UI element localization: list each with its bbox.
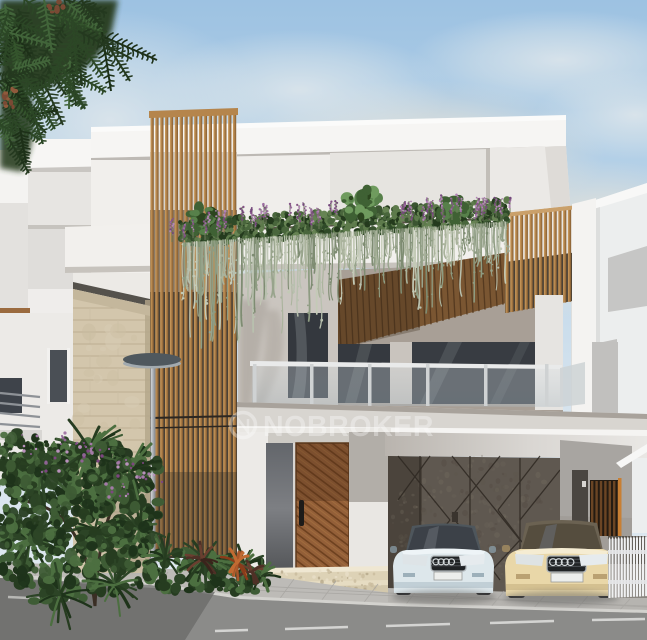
svg-text:NOBROKER: NOBROKER <box>263 411 434 443</box>
